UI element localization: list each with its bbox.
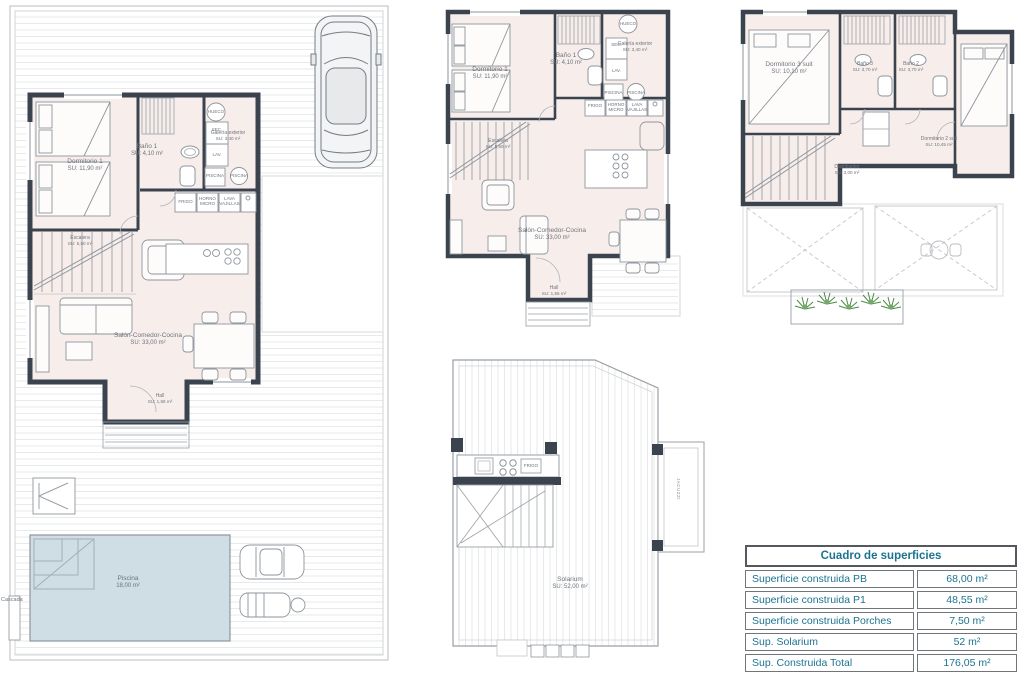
room-label-piscina: Piscina 18,00 m² <box>78 575 178 591</box>
appliance-label-frigo: FRIGO <box>175 199 196 204</box>
plants <box>791 290 903 324</box>
appliance-label-sec: SEC. <box>606 42 627 47</box>
appliance-label-horno: HORNO MICRO <box>606 102 626 112</box>
plan-first-floor: Dormitorio 3 suit SU: 10,10 m² Baño 3 SU… <box>735 4 1020 335</box>
kitchen-island <box>166 244 248 274</box>
appliance-label-piscina-circle: PISCINA <box>227 173 251 178</box>
room-label-dormitorio2: Dormitorio 2 suit SU: 10,45 m² <box>901 136 977 148</box>
surface-table-title: Cuadro de superficies <box>745 545 1017 567</box>
table-row: Superficie construida Porches 7,50 m² <box>745 612 1017 630</box>
room-label-dormitorio3: Dormitorio 3 suit SU: 10,10 m² <box>747 61 831 77</box>
appliance-label-hueco: HUECO <box>617 21 639 26</box>
table-cell-label: Superficie construida PB <box>745 570 914 588</box>
table-cell-label: Sup. Solarium <box>745 633 914 651</box>
appliance-label-lava: LAVA VAJILLAS <box>627 102 647 112</box>
appliance-label-piscina-box: PISCINA <box>203 173 227 178</box>
room-label-bano2: Baño 2 SU: 3,70 m² <box>883 61 939 73</box>
table-cell-value: 7,50 m² <box>917 612 1017 630</box>
toilet-bano2 <box>933 76 947 96</box>
room-label-escalera: Escalera SU: 5,50 m² <box>466 138 530 150</box>
cascada-label: Cascada <box>1 597 33 603</box>
table-row: Sup. Construida Total 176,05 m² <box>745 654 1017 672</box>
appliance-label-lav: LAV. <box>206 152 228 157</box>
porch-steps <box>103 422 189 448</box>
plan-ground-floor-detail: Dormitorio 1 SU: 11,90 m² Baño 1 SU: 4,1… <box>440 4 685 335</box>
table-cell-label: Superficie construida Porches <box>745 612 914 630</box>
table-cell-label: Sup. Construida Total <box>745 654 914 672</box>
room-label-salon: Salón-Comedor-Cocina SU: 33,00 m² <box>102 332 194 348</box>
parked-car <box>240 545 304 579</box>
sun-lounger <box>240 593 305 617</box>
floorplan-sheet: Dormitorio 1 SU: 11,90 m² Baño 1 SU: 4,1… <box>0 0 1024 682</box>
porch-steps <box>526 302 590 326</box>
pb-site-drawing <box>8 4 390 662</box>
roof-terrace-outline <box>743 204 1003 296</box>
table-row: Sup. Solarium 52 m² <box>745 633 1017 651</box>
jacuzzi-label: JACUZZI <box>676 478 681 518</box>
room-label-bano1: Baño 1 SU: 4,10 m² <box>111 143 183 159</box>
appliance-label-frigo: FRIGO <box>585 103 605 108</box>
room-label-dormitorio1: Dormitorio 1 SU: 11,90 m² <box>448 66 532 82</box>
toilet-bano3 <box>878 76 892 96</box>
table-cell-value: 52 m² <box>917 633 1017 651</box>
appliance-label-frigo: FRIGO <box>521 463 541 468</box>
room-label-dormitorio1: Dormitorio 1 SU: 11,90 m² <box>43 158 127 174</box>
table-row: Superficie construida P1 48,55 m² <box>745 591 1017 609</box>
room-name: Dormitorio 1 <box>43 158 127 166</box>
surface-area-table: Cuadro de superficies Superficie constru… <box>745 545 1017 675</box>
appliance-label-lav: LAV. <box>606 68 627 73</box>
appliance-label-horno: HORNO MICRO <box>197 196 218 206</box>
k-symbol <box>33 478 75 514</box>
table-cell-value: 48,55 m² <box>917 591 1017 609</box>
room-label-hall: Hall SU: 1,55 m² <box>130 393 190 405</box>
washbasin <box>181 146 199 158</box>
toilet <box>180 166 195 186</box>
room-label-distribuidor: Distribuidor SU: 3,00 m² <box>815 164 879 176</box>
table-row: Superficie construida PB 68,00 m² <box>745 570 1017 588</box>
table-cell-label: Superficie construida P1 <box>745 591 914 609</box>
appliance-label-hueco: HUECO <box>204 109 228 114</box>
terrace-table-set <box>921 241 961 259</box>
toilet <box>588 66 602 85</box>
bed-dorm3 <box>749 30 829 124</box>
appliance-label-piscina-circle: PISCINA <box>625 90 647 95</box>
room-label-solarium: Solarium SU: 52,00 m² <box>530 576 610 592</box>
roof-vents <box>497 640 589 657</box>
room-label-escalera: Escalera SU: 5,50 m² <box>48 235 112 247</box>
driveway <box>262 176 383 332</box>
room-label-bano1: Baño 1 SU: 4,10 m² <box>530 52 602 68</box>
stair-bulkhead <box>451 438 561 547</box>
room-label-hall: Hall SU: 1,55 m² <box>524 285 584 297</box>
appliance-label-piscina-box: PISCINA <box>603 90 624 95</box>
plan-ground-floor-site: Dormitorio 1 SU: 11,90 m² Baño 1 SU: 4,1… <box>8 4 390 662</box>
car-top-view <box>311 16 381 168</box>
table-cell-value: 68,00 m² <box>917 570 1017 588</box>
appliance-label-sec: SEC. <box>206 127 228 132</box>
bed-dorm2 <box>961 44 1007 126</box>
pergola-skylights <box>747 206 997 292</box>
table-cell-value: 176,05 m² <box>917 654 1017 672</box>
solarium-drawing <box>445 358 710 660</box>
room-area: SU: 11,90 m² <box>43 166 127 173</box>
plan-solarium: Solarium SU: 52,00 m² JACUZZI FRIGO <box>445 358 710 660</box>
summer-kitchen <box>457 455 559 477</box>
appliance-label-lava: LAVA VAJILLAS <box>219 196 240 206</box>
room-label-salon: Salón-Comedor-Cocina SU: 33,00 m² <box>506 227 598 243</box>
